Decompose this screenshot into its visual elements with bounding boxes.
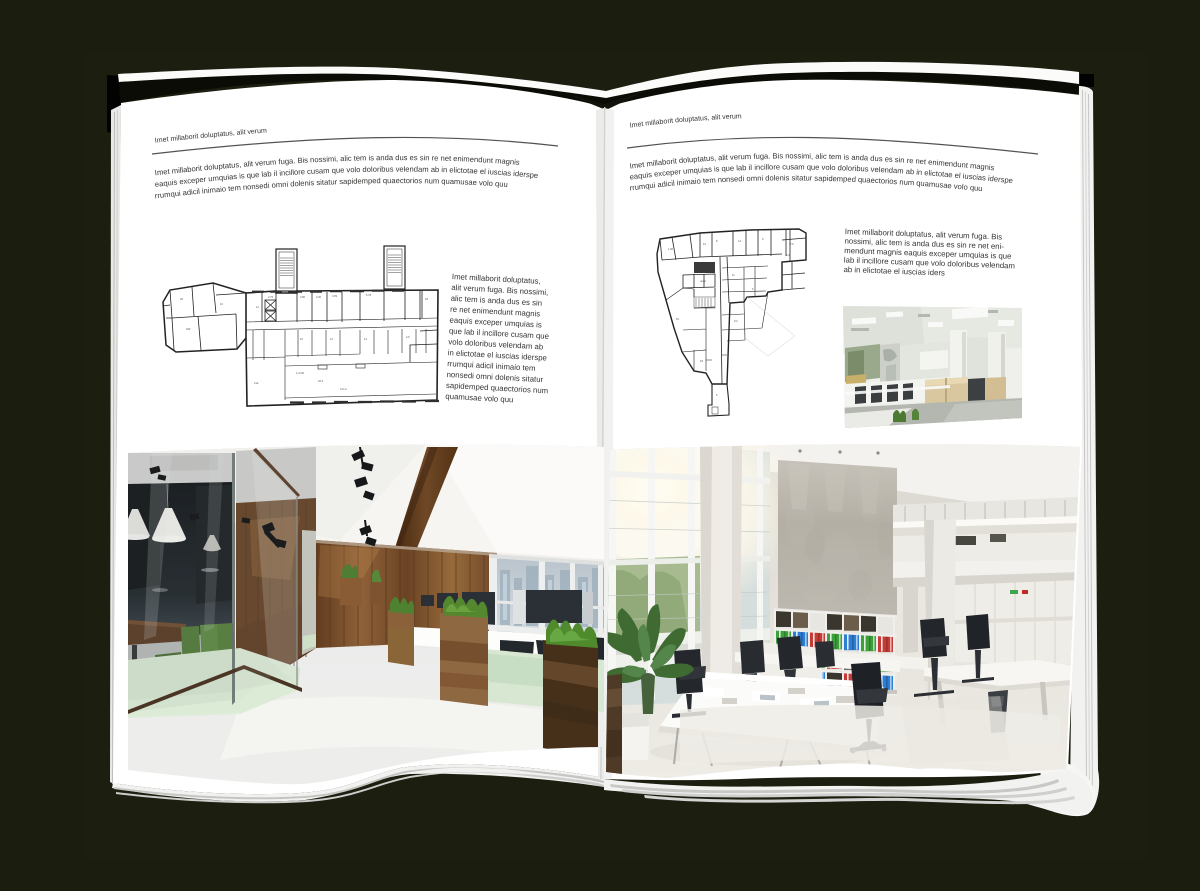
svg-text:21а: 21а xyxy=(254,381,259,385)
svg-text:3.4: 3.4 xyxy=(786,253,790,257)
svg-text:2.30: 2.30 xyxy=(316,295,322,299)
svg-text:3.09: 3.09 xyxy=(332,294,338,298)
svg-text:7.5: 7.5 xyxy=(790,242,794,246)
svg-text:лифт: лифт xyxy=(700,279,707,283)
svg-text:2.75: 2.75 xyxy=(268,295,274,299)
svg-text:2-й эт: 2-й эт xyxy=(340,387,348,391)
svg-text:46.3: 46.3 xyxy=(318,379,324,383)
svg-text:2.80: 2.80 xyxy=(300,295,306,299)
svg-text:5.78: 5.78 xyxy=(366,293,372,297)
svg-text:9.2: 9.2 xyxy=(734,319,738,323)
svg-text:200: 200 xyxy=(186,327,191,331)
svg-text:4.5: 4.5 xyxy=(406,335,410,339)
svg-text:1+0.00: 1+0.00 xyxy=(296,371,305,375)
svg-text:1.90: 1.90 xyxy=(668,247,674,251)
